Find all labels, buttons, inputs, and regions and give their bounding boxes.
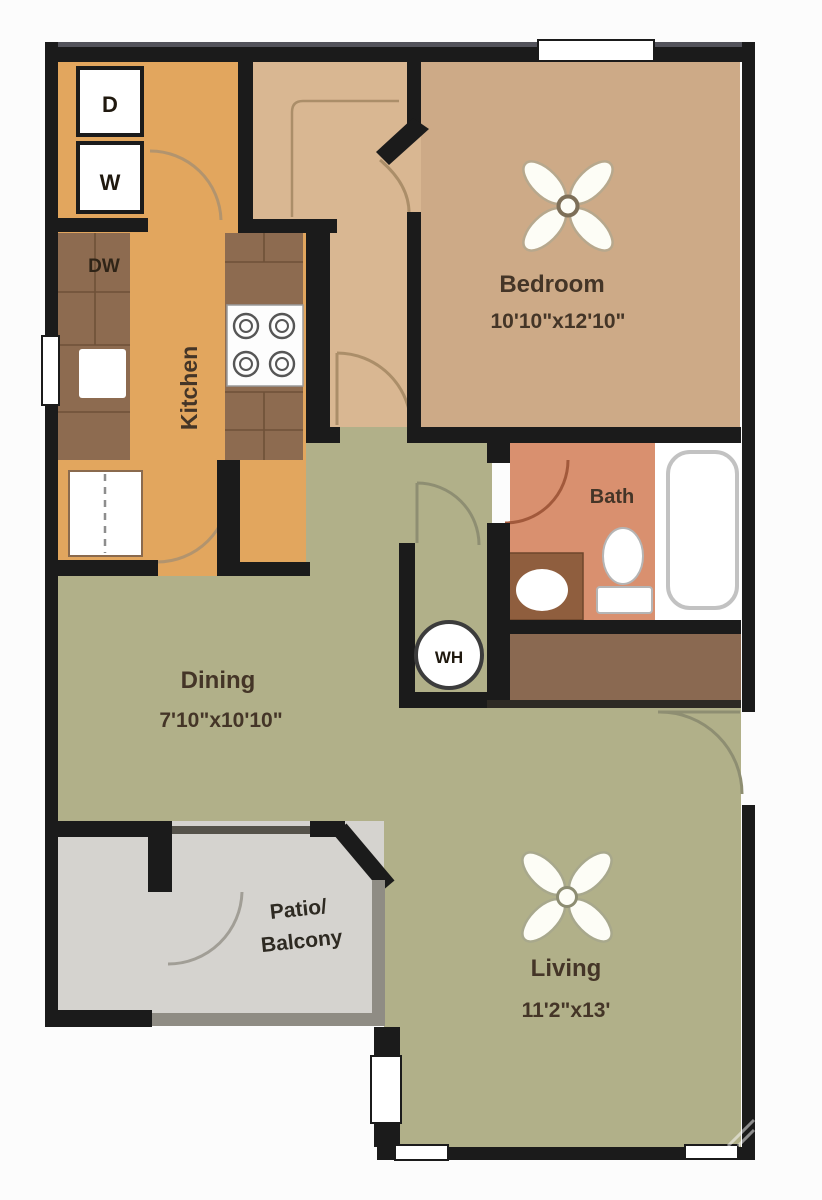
dining-floor bbox=[58, 576, 398, 821]
bath-label: Bath bbox=[590, 486, 634, 508]
wall-pantry-south bbox=[217, 562, 310, 576]
wall-pantry-west bbox=[217, 460, 240, 576]
wall-bedroom-west-upper bbox=[407, 62, 421, 125]
dining-label: Dining bbox=[181, 667, 256, 694]
wall-bedroom-south bbox=[411, 427, 741, 443]
wall-kitchen-south bbox=[58, 560, 158, 576]
toilet-bowl bbox=[603, 528, 643, 584]
wall-exterior-left bbox=[45, 42, 58, 1027]
living-label: Living bbox=[531, 955, 602, 982]
wall-dining-south bbox=[58, 821, 172, 837]
wall-corridor-west bbox=[306, 219, 330, 443]
dishwasher-label: DW bbox=[88, 256, 120, 277]
kitchen-label: Kitchen bbox=[176, 346, 202, 430]
bedroom-label: Bedroom bbox=[499, 271, 604, 298]
living-dims: 11'2"x13' bbox=[522, 999, 611, 1022]
kitchen-sink bbox=[79, 349, 126, 398]
wall-wh-closet-west bbox=[399, 543, 415, 708]
floor-plan-drawing: WH D W DW Kitchen Bedroom 10'10"x12'10" … bbox=[0, 0, 822, 1200]
wall-bath-south bbox=[487, 620, 741, 634]
wall-hall-north-stub bbox=[306, 427, 340, 443]
window-kitchen-left bbox=[42, 336, 59, 405]
wall-exterior-right-upper bbox=[742, 42, 755, 712]
wall-bath-west-upper bbox=[487, 427, 510, 463]
wall-linen-closet-south bbox=[487, 700, 741, 708]
patio-rail-east bbox=[372, 880, 385, 1026]
water-heater: WH bbox=[416, 622, 482, 688]
living-floor bbox=[384, 703, 741, 1148]
window-living-bottom-right bbox=[685, 1145, 738, 1159]
bathtub bbox=[668, 452, 737, 608]
bedroom-dims: 10'10"x12'10" bbox=[490, 310, 625, 333]
wall-laundry-divider bbox=[238, 62, 253, 233]
wall-wh-closet-south bbox=[399, 692, 492, 708]
washer-label: W bbox=[100, 170, 121, 195]
water-heater-label: WH bbox=[435, 648, 463, 667]
patio-glass-wall bbox=[172, 826, 318, 834]
patio-floor bbox=[58, 821, 384, 1014]
wall-laundry-bottom bbox=[58, 218, 148, 232]
vanity-sink bbox=[516, 569, 568, 611]
window-living-west bbox=[371, 1056, 401, 1123]
window-living-bottom-left bbox=[395, 1145, 448, 1160]
floor-plan-page: WH D W DW Kitchen Bedroom 10'10"x12'10" … bbox=[0, 0, 822, 1200]
wall-bedroom-west-lower bbox=[407, 212, 421, 443]
toilet-tank bbox=[597, 587, 652, 613]
bedroom-floor bbox=[421, 62, 740, 427]
dryer-label: D bbox=[102, 92, 118, 117]
wall-patio-south-west bbox=[45, 1010, 152, 1027]
wall-bath-west-lower bbox=[487, 523, 510, 708]
window-bedroom-top bbox=[538, 40, 654, 61]
wall-exterior-right-lower bbox=[742, 805, 755, 1160]
dining-dims: 7'10"x10'10" bbox=[159, 709, 282, 732]
wall-patio-door-stub bbox=[148, 837, 172, 892]
patio-rail-south bbox=[150, 1013, 384, 1026]
